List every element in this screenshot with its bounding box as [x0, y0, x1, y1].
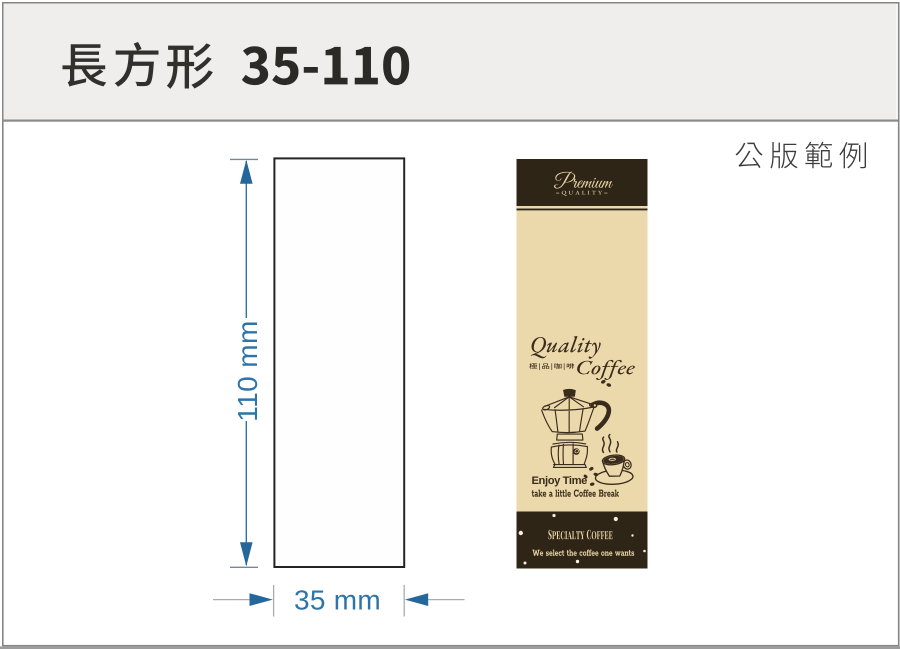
- svg-text:110 mm: 110 mm: [232, 320, 263, 421]
- svg-text:Enjoy Time: Enjoy Time: [532, 475, 588, 487]
- svg-text:35 mm: 35 mm: [294, 584, 381, 615]
